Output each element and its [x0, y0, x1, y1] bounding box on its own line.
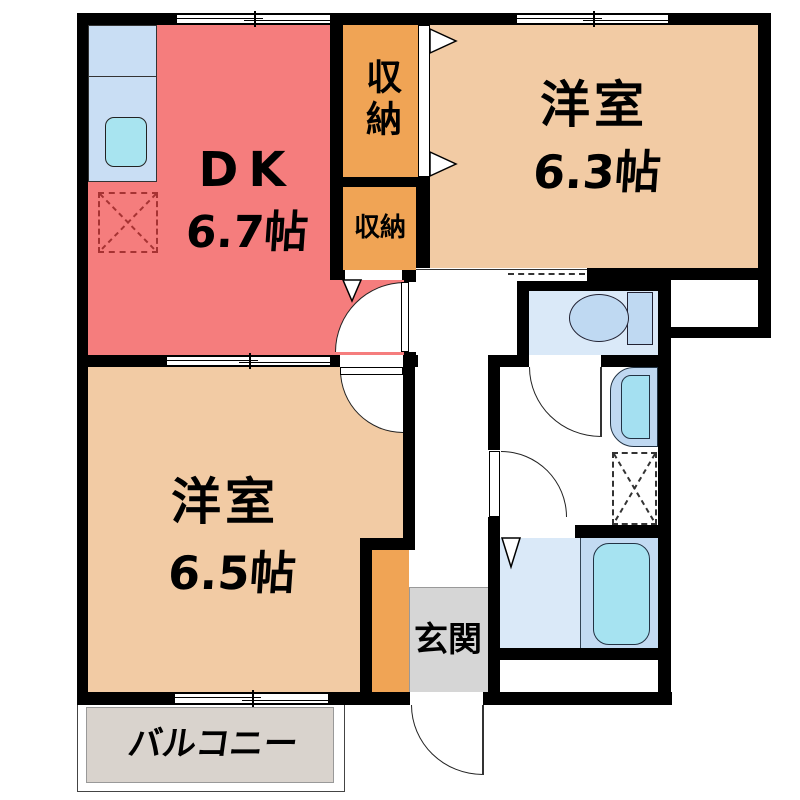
wall-wet-right [658, 280, 671, 693]
washing-machine-space [612, 452, 657, 525]
entrance-door-panel [482, 705, 484, 775]
wall-storage-left [330, 25, 343, 280]
window-line [583, 20, 668, 21]
storage-upper-label: 収納 [362, 58, 398, 142]
opening-hall-top-edge [416, 269, 587, 270]
storage-lower-label: 収納 [354, 215, 406, 241]
wall-toilet-left [517, 280, 529, 367]
dk-room-size: 6.7帖 [184, 211, 309, 255]
toilet-door-panel [600, 367, 602, 437]
window-line [242, 700, 328, 701]
corridor-floor [372, 550, 409, 693]
window-line [239, 362, 330, 363]
window-line [517, 18, 602, 19]
window-line [244, 20, 330, 21]
window-tick [252, 690, 254, 707]
window-line [177, 18, 263, 19]
refrigerator-space [98, 192, 158, 253]
window-tick [249, 353, 251, 369]
wall-toilet-top [517, 280, 658, 291]
kitchen-sink [105, 117, 147, 167]
western-room-upper-name: 洋室 [540, 80, 648, 130]
wall-western-upper-bottom [587, 268, 771, 280]
wall-right-upper [758, 13, 771, 338]
wall-alcove-bottom [658, 327, 771, 338]
window-tick [593, 11, 595, 27]
wall-hall-west [403, 357, 415, 538]
wall-bath-top [575, 525, 658, 538]
wall-washroom-left [488, 355, 500, 693]
toilet-tank [627, 292, 653, 345]
entrance-label: 玄関 [414, 623, 482, 657]
window-western-lower-bottom [175, 692, 328, 705]
entrance-door-swing-arc [411, 705, 483, 775]
storage-upper-door-strip [418, 25, 430, 177]
opening-western-lower-door [340, 355, 403, 367]
bathtub [593, 543, 650, 645]
western-lower-door-panel [340, 367, 403, 375]
window-dk-top [177, 13, 330, 25]
western-room-lower-size: 6.5帖 [167, 550, 298, 596]
wall-storage-right-lower [416, 177, 430, 280]
opening-hall-dashed-line [508, 273, 585, 275]
window-western-upper-top [517, 13, 668, 25]
wall-hall-jog [360, 538, 415, 550]
balcony-label: バルコニー [126, 727, 300, 761]
kitchen-counter-divider [88, 76, 157, 77]
dk-room-name: DK [198, 146, 295, 194]
window-line [175, 697, 261, 698]
wall-storage-divider [330, 177, 430, 187]
opening-bath-door [500, 525, 575, 538]
bathroom-floor [500, 538, 580, 648]
washroom-door-panel [489, 451, 500, 517]
wall-bath-bottom [488, 648, 658, 660]
vanity-bowl [621, 375, 650, 439]
opening-toilet-door [529, 355, 601, 367]
western-room-upper-size: 6.3帖 [532, 149, 663, 195]
floor-plan: DK 6.7帖 洋室 6.3帖 洋室 6.5帖 収納 収納 玄関 バルコニー [0, 0, 800, 800]
western-room-lower-name: 洋室 [171, 477, 279, 527]
wall-corridor-west [360, 550, 372, 693]
opening-storage-lower [345, 270, 402, 280]
window-line [167, 360, 258, 361]
wall-bottom [77, 692, 672, 705]
window-tick [254, 11, 256, 27]
toilet-bowl [569, 294, 629, 342]
opening-entrance-door [410, 692, 483, 705]
dk-door-panel [401, 282, 409, 352]
sliding-partition-dk [167, 355, 330, 367]
